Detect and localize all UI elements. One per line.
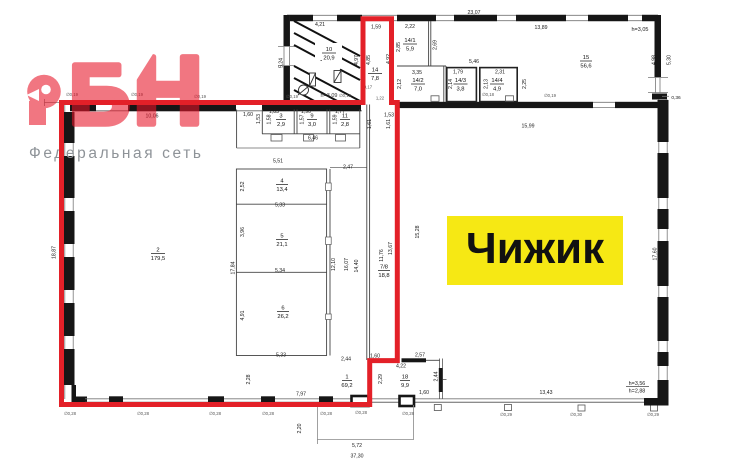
svg-text:∅0,19: ∅0,19 xyxy=(544,93,557,98)
svg-text:1,58: 1,58 xyxy=(267,114,273,124)
svg-text:2,47: 2,47 xyxy=(343,165,353,171)
svg-text:17,60: 17,60 xyxy=(653,247,659,260)
svg-text:∅0,28: ∅0,28 xyxy=(209,411,222,416)
svg-text:1,59: 1,59 xyxy=(333,114,339,124)
svg-text:1,22: 1,22 xyxy=(376,96,385,101)
svg-text:∅0,18: ∅0,18 xyxy=(482,92,495,97)
svg-text:14/4: 14/4 xyxy=(491,78,503,84)
svg-text:4,9: 4,9 xyxy=(493,87,501,93)
svg-text:5,33: 5,33 xyxy=(276,353,286,359)
svg-text:h=3,09: h=3,09 xyxy=(321,93,338,99)
svg-text:h=2,88: h=2,88 xyxy=(629,389,646,395)
svg-text:∅0,28: ∅0,28 xyxy=(262,411,275,416)
svg-text:17,84: 17,84 xyxy=(231,261,237,274)
svg-text:4,22: 4,22 xyxy=(396,364,406,370)
svg-text:∅0,28: ∅0,28 xyxy=(355,410,368,415)
svg-text:16,07: 16,07 xyxy=(344,258,350,271)
svg-text:4,91: 4,91 xyxy=(240,310,246,320)
svg-text:2,52: 2,52 xyxy=(240,181,246,191)
svg-text:4,21: 4,21 xyxy=(315,22,325,28)
svg-text:14,40: 14,40 xyxy=(354,259,360,272)
svg-text:6,46: 6,46 xyxy=(308,136,318,142)
svg-text:15: 15 xyxy=(583,55,589,61)
svg-text:3,0: 3,0 xyxy=(308,122,316,128)
svg-text:1,53: 1,53 xyxy=(256,114,262,124)
svg-text:6: 6 xyxy=(281,306,284,312)
svg-text:1,59: 1,59 xyxy=(371,25,381,31)
svg-text:14/2: 14/2 xyxy=(412,78,423,84)
svg-text:2: 2 xyxy=(156,248,159,254)
svg-text:2,85: 2,85 xyxy=(396,42,402,52)
svg-text:26,2: 26,2 xyxy=(277,314,288,320)
svg-text:∅0,28: ∅0,28 xyxy=(402,411,415,416)
svg-text:2,13: 2,13 xyxy=(484,79,490,89)
svg-text:3,35: 3,35 xyxy=(412,70,422,76)
svg-text:2,22: 2,22 xyxy=(405,24,415,30)
svg-text:1,79: 1,79 xyxy=(453,70,463,76)
svg-text:7,0: 7,0 xyxy=(414,87,422,93)
svg-text:20,9: 20,9 xyxy=(323,56,334,62)
svg-text:5,30: 5,30 xyxy=(667,55,673,65)
svg-text:2,20: 2,20 xyxy=(297,423,303,433)
svg-text:h=3,05: h=3,05 xyxy=(632,27,649,33)
svg-text:2,57: 2,57 xyxy=(415,353,425,359)
svg-text:37,30: 37,30 xyxy=(351,454,364,459)
svg-text:10: 10 xyxy=(326,47,332,53)
svg-text:5,34: 5,34 xyxy=(275,268,285,274)
svg-text:h=3,56: h=3,56 xyxy=(629,381,646,387)
svg-text:5,46: 5,46 xyxy=(469,59,479,65)
svg-text:3,96: 3,96 xyxy=(240,227,246,237)
svg-text:∅0,28: ∅0,28 xyxy=(64,411,77,416)
svg-text:2,28: 2,28 xyxy=(246,374,252,384)
svg-text:∅0,29: ∅0,29 xyxy=(500,412,513,417)
svg-text:Чижик: Чижик xyxy=(466,224,605,273)
svg-text:2,9: 2,9 xyxy=(277,122,285,128)
svg-text:∅0,28: ∅0,28 xyxy=(320,411,333,416)
svg-text:1,83: 1,83 xyxy=(269,109,279,115)
svg-text:21,1: 21,1 xyxy=(276,242,287,248)
svg-text:11: 11 xyxy=(342,114,348,120)
svg-text:5,33: 5,33 xyxy=(275,203,285,209)
svg-text:5,72: 5,72 xyxy=(352,443,362,449)
svg-text:1: 1 xyxy=(345,375,348,381)
svg-text:0,36: 0,36 xyxy=(671,95,681,101)
svg-text:1,60: 1,60 xyxy=(243,112,253,118)
svg-text:∅0,30: ∅0,30 xyxy=(570,412,583,417)
svg-text:5,24: 5,24 xyxy=(279,58,285,68)
svg-text:13,4: 13,4 xyxy=(276,187,288,193)
svg-text:23,07: 23,07 xyxy=(468,10,481,16)
svg-text:∅0,18: ∅0,18 xyxy=(339,93,352,98)
svg-text:Федеральная сеть: Федеральная сеть xyxy=(29,145,204,162)
svg-text:3,8: 3,8 xyxy=(456,87,464,93)
svg-text:1,61: 1,61 xyxy=(367,119,373,129)
svg-text:∅0,28: ∅0,28 xyxy=(137,411,150,416)
svg-text:7,97: 7,97 xyxy=(296,392,306,398)
svg-text:4,85: 4,85 xyxy=(366,55,372,65)
svg-text:2,8: 2,8 xyxy=(341,122,349,128)
svg-text:2,14: 2,14 xyxy=(448,79,454,89)
svg-text:4: 4 xyxy=(280,179,284,185)
svg-text:2,69: 2,69 xyxy=(433,40,439,50)
svg-text:5,9: 5,9 xyxy=(406,47,414,53)
svg-text:14/1: 14/1 xyxy=(404,38,415,44)
svg-text:7/8: 7/8 xyxy=(380,265,388,271)
svg-text:2,12: 2,12 xyxy=(397,79,403,89)
svg-text:4,97: 4,97 xyxy=(354,55,360,65)
svg-text:56,6: 56,6 xyxy=(580,64,591,70)
svg-text:5,51: 5,51 xyxy=(273,159,283,165)
svg-text:14: 14 xyxy=(372,68,379,74)
svg-text:2,44: 2,44 xyxy=(341,357,351,363)
svg-text:1,57: 1,57 xyxy=(300,114,306,124)
svg-text:18,87: 18,87 xyxy=(52,246,58,259)
svg-text:1,61: 1,61 xyxy=(386,119,392,129)
svg-text:13,67: 13,67 xyxy=(388,242,394,255)
svg-text:2,29: 2,29 xyxy=(378,374,384,384)
svg-text:15,28: 15,28 xyxy=(415,225,421,238)
svg-text:3: 3 xyxy=(279,114,282,120)
svg-text:13,43: 13,43 xyxy=(540,390,553,396)
svg-text:4,98: 4,98 xyxy=(652,55,658,65)
svg-text:Б: Б xyxy=(69,48,130,143)
svg-text:1,60: 1,60 xyxy=(419,390,429,396)
svg-text:14/3: 14/3 xyxy=(455,78,466,84)
svg-text:1,53: 1,53 xyxy=(384,113,394,119)
svg-text:7,8: 7,8 xyxy=(371,76,379,82)
svg-text:2,31: 2,31 xyxy=(495,70,505,76)
svg-text:18,8: 18,8 xyxy=(378,273,389,279)
svg-text:∅0,29: ∅0,29 xyxy=(647,412,660,417)
svg-text:179,5: 179,5 xyxy=(151,256,166,262)
svg-text:12,10: 12,10 xyxy=(331,258,337,271)
svg-text:69,2: 69,2 xyxy=(341,383,352,389)
svg-text:18: 18 xyxy=(402,375,408,381)
svg-text:13,89: 13,89 xyxy=(535,25,548,31)
svg-text:2,25: 2,25 xyxy=(522,79,528,89)
svg-text:9,9: 9,9 xyxy=(401,383,409,389)
svg-text:11,76: 11,76 xyxy=(379,249,385,262)
svg-text:2,44: 2,44 xyxy=(434,371,440,381)
svg-text:15,99: 15,99 xyxy=(522,124,535,130)
svg-text:9: 9 xyxy=(310,114,313,120)
svg-text:5: 5 xyxy=(280,234,283,240)
svg-text:∅0,19: ∅0,19 xyxy=(286,94,299,99)
